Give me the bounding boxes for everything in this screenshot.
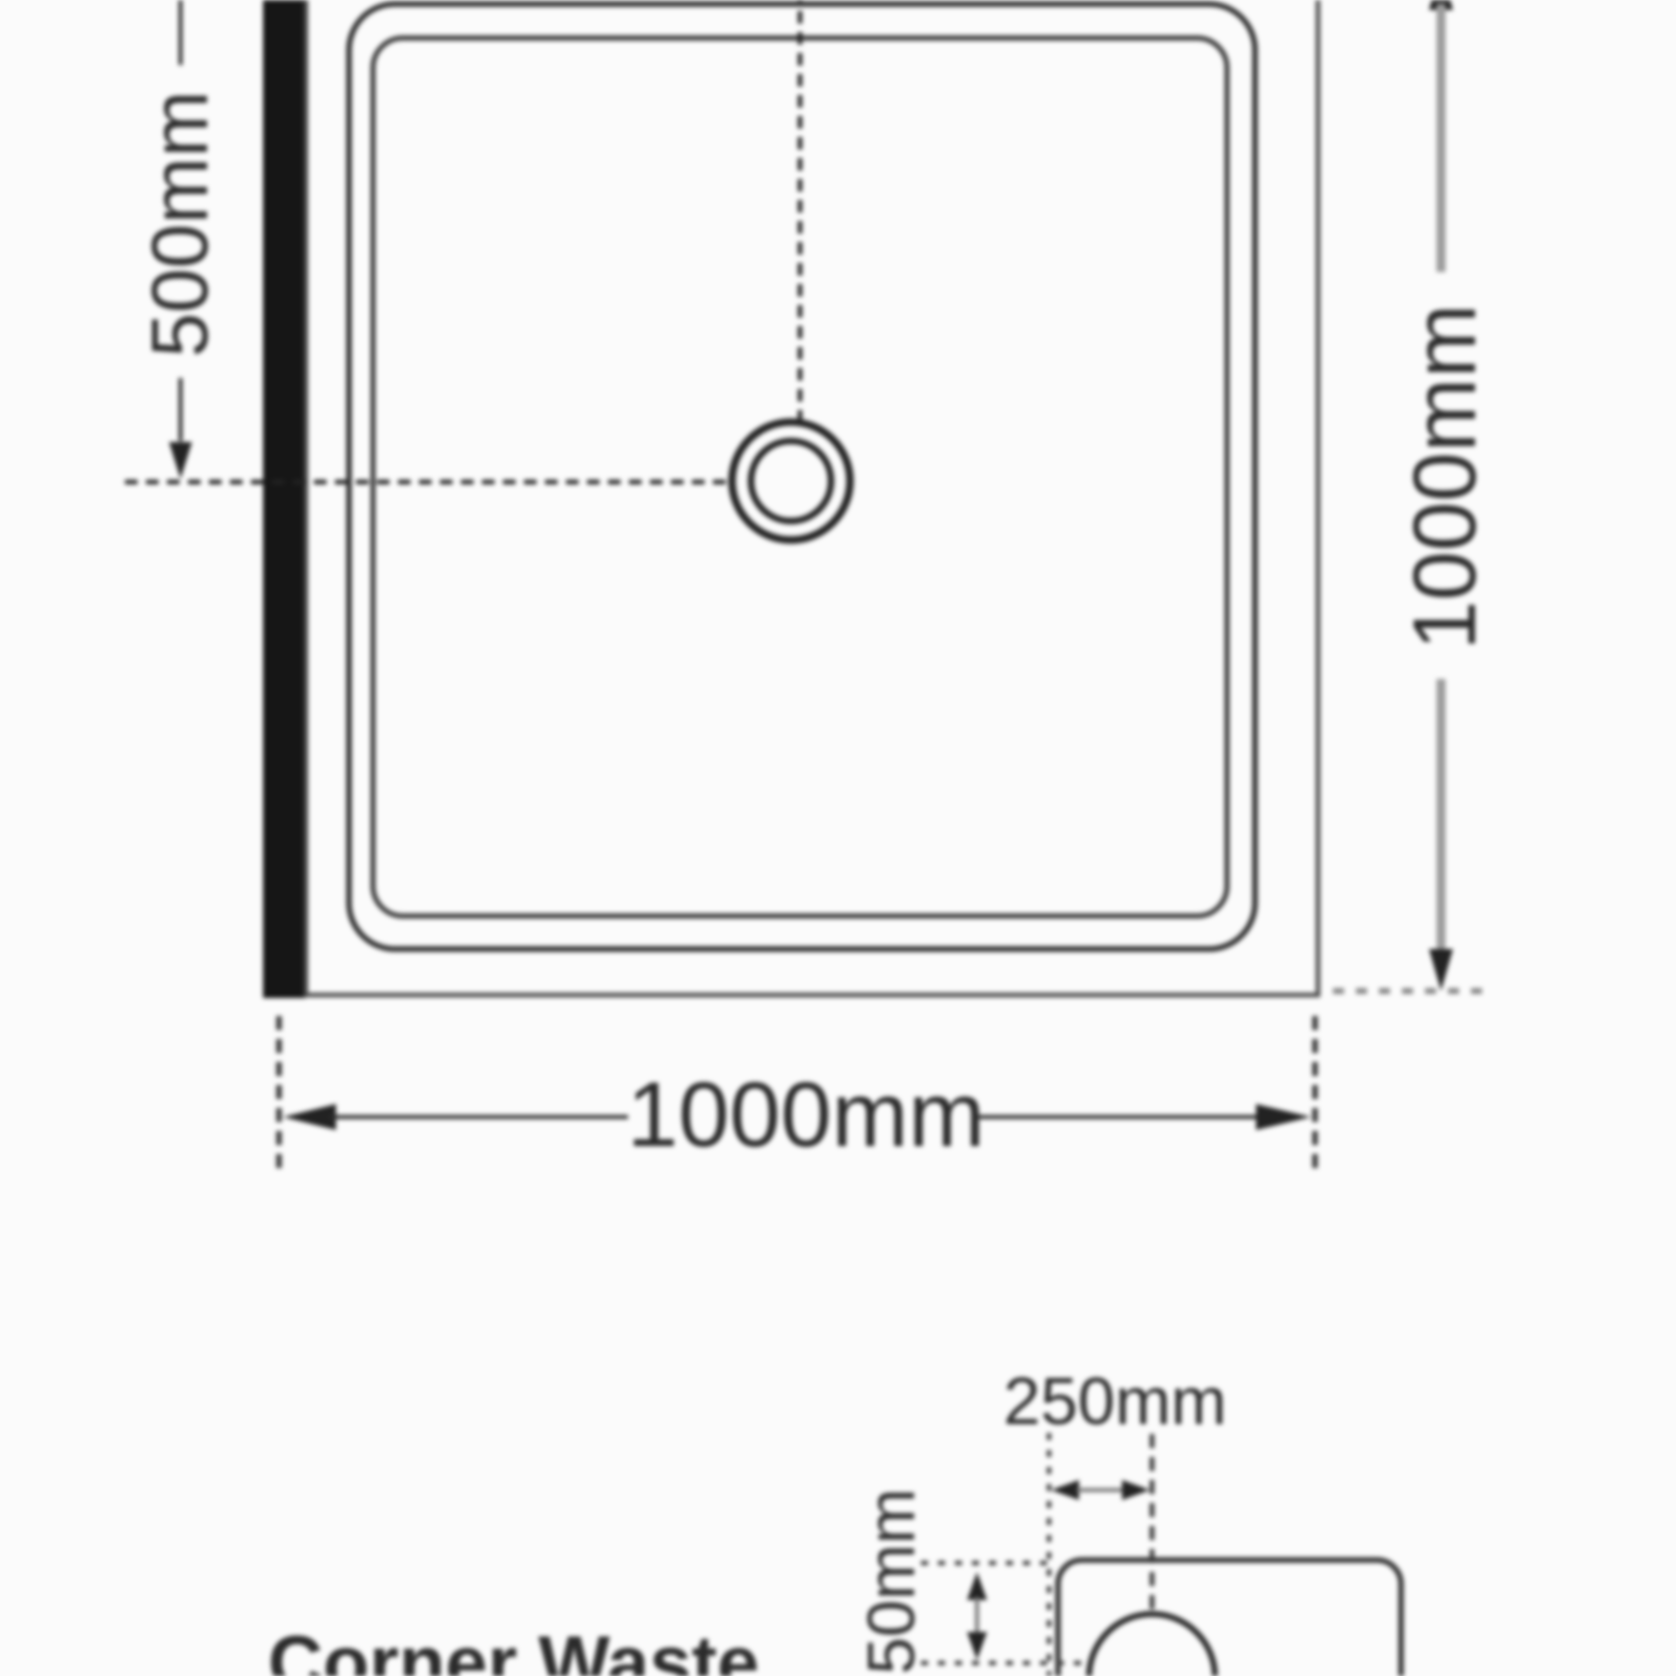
svg-text:250mm: 250mm xyxy=(1003,1364,1226,1439)
svg-text:1000mm: 1000mm xyxy=(627,1064,985,1166)
svg-text:Corner Waste: Corner Waste xyxy=(268,1621,759,1676)
svg-text:250mm: 250mm xyxy=(854,1488,929,1676)
svg-text:1000mm: 1000mm xyxy=(1394,304,1494,650)
svg-text:500mm: 500mm xyxy=(135,91,224,358)
